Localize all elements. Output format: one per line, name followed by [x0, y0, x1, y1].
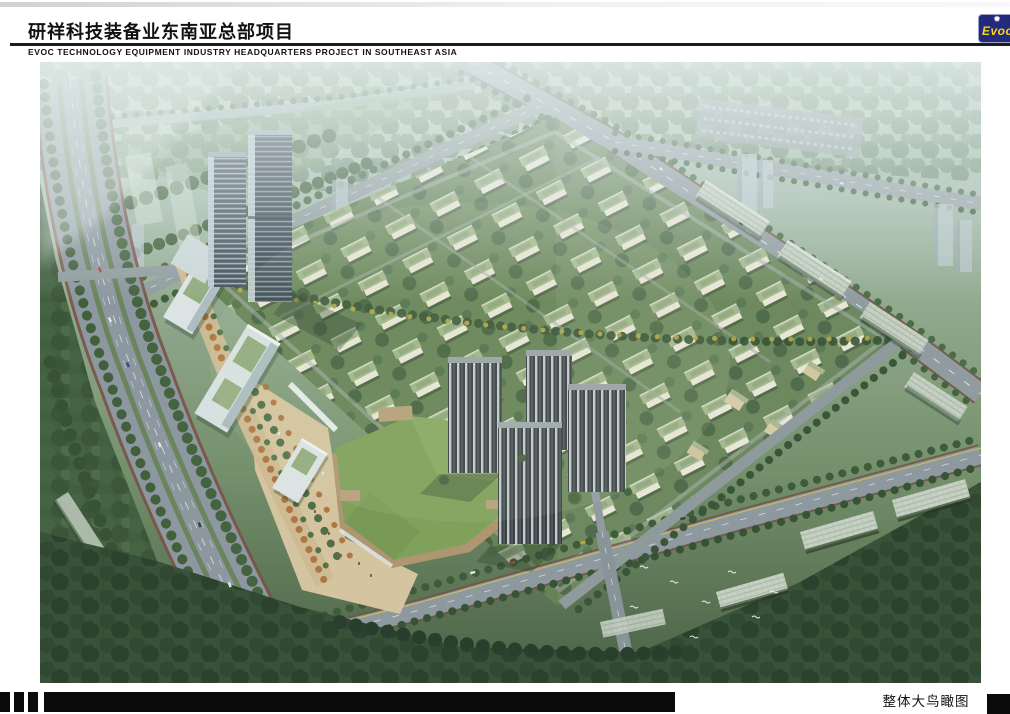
image-caption: 整体大鸟瞰图	[880, 692, 972, 712]
tint-overlay	[40, 62, 981, 683]
footer-end-square	[987, 694, 1010, 714]
evoc-logo-text: Evoc	[982, 24, 1010, 38]
project-title-cn: 研祥科技装备业东南亚总部项目	[28, 18, 294, 44]
evoc-logo: ✹ Evoc	[978, 14, 1010, 43]
footer-bar	[44, 692, 675, 712]
footer-stripe-2	[14, 692, 24, 712]
presentation-board: 研祥科技装备业东南亚总部项目 EVOC TECHNOLOGY EQUIPMENT…	[0, 0, 1010, 714]
scan-artifact-strip	[0, 2, 1010, 7]
aerial-rendering-image	[40, 62, 981, 683]
sunburst-icon: ✹	[989, 15, 1005, 24]
project-title-en: EVOC TECHNOLOGY EQUIPMENT INDUSTRY HEADQ…	[28, 47, 457, 57]
title-rule	[10, 43, 1010, 46]
footer-stripe-3	[28, 692, 38, 712]
footer-stripe-1	[0, 692, 10, 712]
